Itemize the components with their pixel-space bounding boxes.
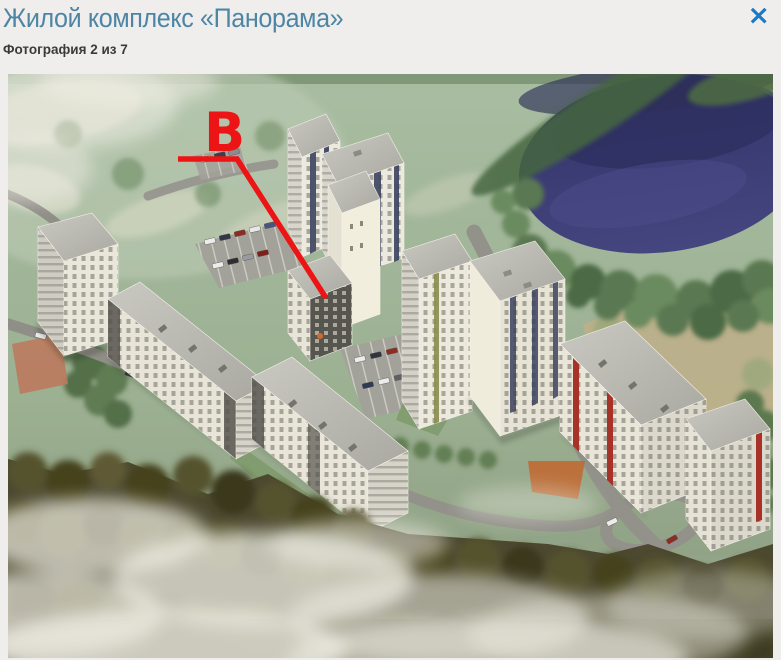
photo-viewer: Жилой комплекс «Панорама» Фотография 2 и… xyxy=(0,0,781,660)
aerial-render: В xyxy=(8,74,773,658)
page-title: Жилой комплекс «Панорама» xyxy=(3,3,343,34)
photo-viewport[interactable]: В xyxy=(8,74,773,658)
annotation-letter: В xyxy=(204,101,245,164)
photo-counter: Фотография 2 из 7 xyxy=(3,42,128,57)
close-icon[interactable]: × xyxy=(743,0,774,31)
